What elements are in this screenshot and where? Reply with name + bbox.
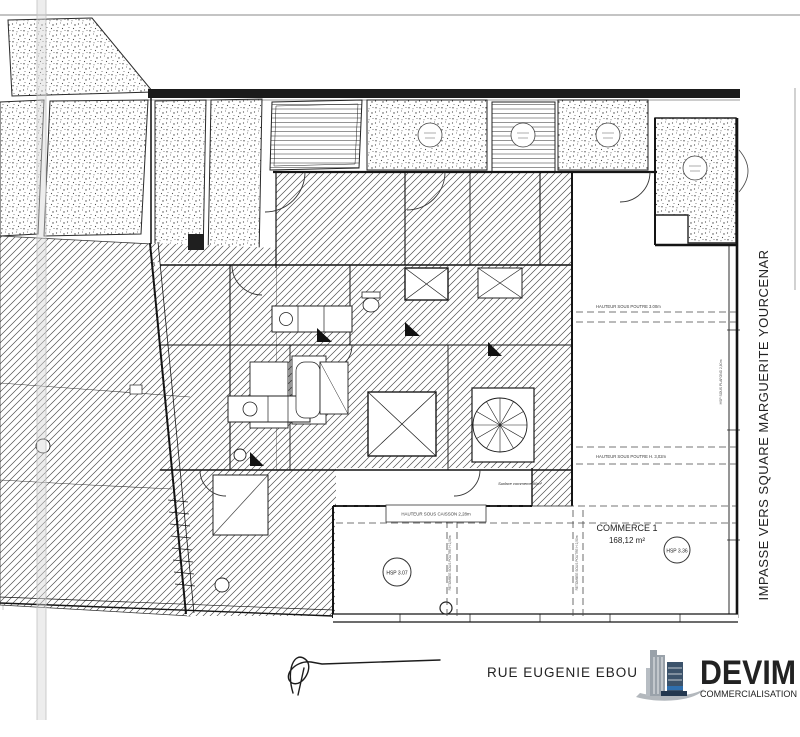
commerce-area-label: 168,12 m² [609,536,645,545]
fold-crease [37,0,46,720]
shaft-icon [368,392,436,456]
elevator-icon [405,268,448,300]
hsp-marker-2-label: HSP 3.36 [666,549,688,555]
commerce-label: COMMERCE 1 [596,523,657,533]
hsp-marker-1: HSP 3.07 [383,558,411,586]
logo-brand: DEVIM [700,654,796,692]
wall-hsp-annotation: HSP SOUS PLAFOND 2,80m [719,359,723,404]
street-label-right: IMPASSE VERS SQUARE MARGUERITE YOURCENAR [756,249,771,600]
tree-marker-icon [683,156,707,180]
beam-annotation-vert-right: RETOMBEE SOUS POUTRE H 2,50m [575,535,579,590]
tree-marker-icon [596,123,620,147]
surface-note: Surface commerce 90m² [498,481,542,486]
signature [288,657,440,695]
spiral-stair-icon [472,388,534,462]
street-label-bottom: RUE EUGENIE EBOU [487,665,638,680]
floor-plan-drawing: HAUTEUR SOUS POUTRE 3.00m HAUTEUR SOUS P… [0,0,800,737]
hsp-marker-1-label: HSP 3.07 [386,571,408,577]
buildings-icon [636,650,704,701]
caisson-annotation: HAUTEUR SOUS CAISSON 2,28m [401,512,471,517]
caisson-annotation-box: HAUTEUR SOUS CAISSON 2,28m [386,505,486,522]
devim-logo: DEVIM COMMERCIALISATION [636,650,797,701]
tree-marker-icon [511,123,535,147]
beam-annotation-top: HAUTEUR SOUS POUTRE 3.00m [596,304,661,309]
beam-annotation-vert-left: RETOMBEE SOUS POUTRE H 2,50m [448,535,452,590]
floor-plan-sheet: HAUTEUR SOUS POUTRE 3.00m HAUTEUR SOUS P… [0,0,800,737]
hsp-marker-2: HSP 3.36 [664,537,690,563]
logo-tagline: COMMERCIALISATION [700,689,797,700]
tree-marker-icon [418,123,442,147]
beam-annotation-mid: HAUTEUR SOUS POUTRE H. 3,02m [596,454,667,459]
